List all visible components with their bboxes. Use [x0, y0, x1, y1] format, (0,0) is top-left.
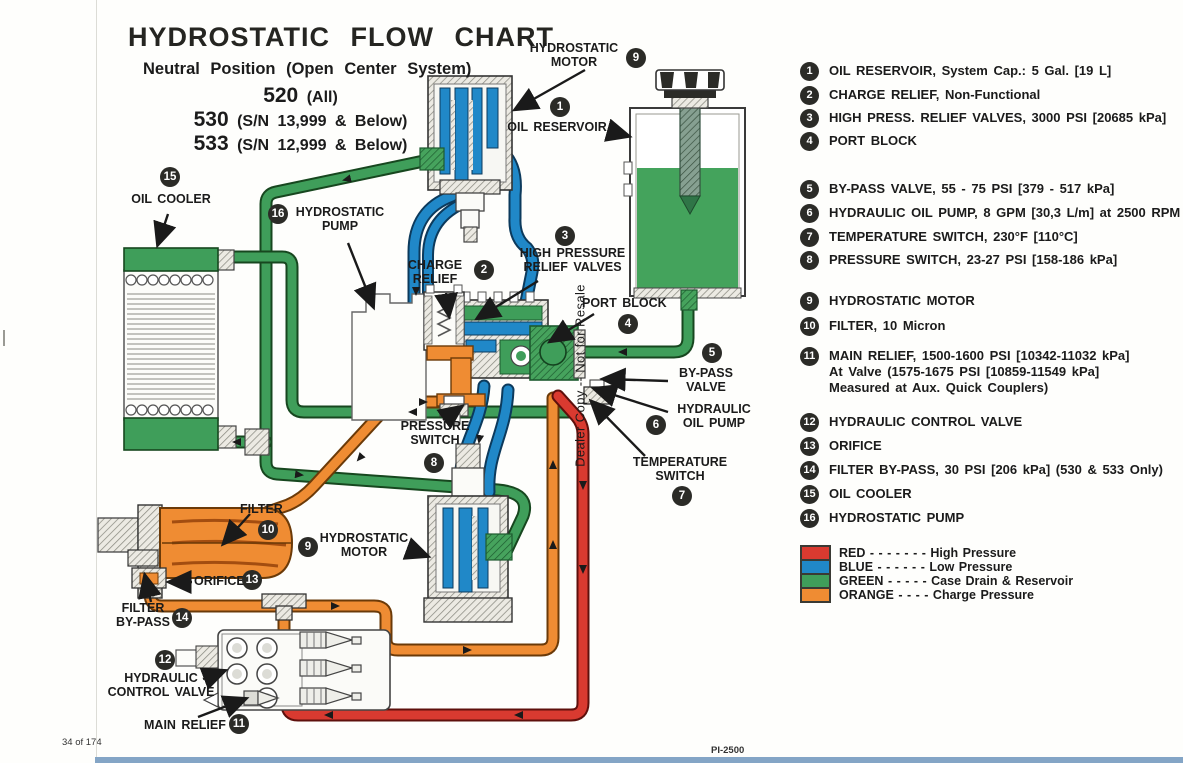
legend-text: PORT BLOCK: [829, 132, 917, 149]
legend-badge: 11: [800, 347, 819, 366]
legend-badge: 10: [800, 317, 819, 336]
legend-item-5: 5BY-PASS VALVE, 55 - 75 PSI [379 - 517 k…: [800, 180, 1183, 199]
label-hydraulic-control-valve: HYDRAULIC CONTROL VALVE: [96, 671, 226, 699]
label-hydraulic-oil-pump: HYDRAULIC OIL PUMP: [670, 402, 758, 430]
label-hydrostatic-motor-bottom: HYDROSTATIC MOTOR: [316, 531, 412, 559]
oil-cooler: [124, 248, 269, 455]
label-charge-relief: CHARGE RELIEF: [400, 258, 470, 286]
color-key-text: BLUE - - - - - - Low Pressure: [839, 560, 1012, 574]
label-hydrostatic-motor-top: HYDROSTATIC MOTOR: [518, 41, 630, 69]
page-title: HYDROSTATIC FLOW CHART: [128, 22, 554, 53]
left-edge-mark: [3, 330, 5, 346]
legend-item-1: 1OIL RESERVOIR, System Cap.: 5 Gal. [19 …: [800, 62, 1183, 81]
legend-badge: 5: [800, 180, 819, 199]
model-list: 520 (All) 530 (S/N 13,999 & Below) 533 (…: [128, 84, 473, 156]
color-desc: Charge Pressure: [933, 588, 1034, 602]
legend-text: BY-PASS VALVE, 55 - 75 PSI [379 - 517 kP…: [829, 180, 1114, 197]
legend-badge: 13: [800, 437, 819, 456]
badge-15: 15: [160, 167, 180, 187]
orange-swatch: [800, 587, 831, 603]
legend-badge: 1: [800, 62, 819, 81]
badge-3: 3: [555, 226, 575, 246]
label-main-relief: MAIN RELIEF: [144, 718, 232, 732]
legend-text: HYDRAULIC OIL PUMP, 8 GPM [30,3 L/m] at …: [829, 204, 1180, 221]
label-oil-cooler: OIL COOLER: [122, 192, 220, 206]
legend-item-11: 11MAIN RELIEF, 1500-1600 PSI [10342-1103…: [800, 347, 1183, 396]
badge-9-bottom: 9: [298, 537, 318, 557]
badge-2: 2: [474, 260, 494, 280]
legend-text: FILTER BY-PASS, 30 PSI [206 kPa] (530 & …: [829, 461, 1163, 478]
legend-badge: 15: [800, 485, 819, 504]
color-name: BLUE: [839, 560, 873, 574]
badge-10: 10: [258, 520, 278, 540]
color-dashes: - - - - - -: [878, 560, 925, 574]
color-dashes: - - - -: [898, 588, 928, 602]
label-hydrostatic-pump: HYDROSTATIC PUMP: [292, 205, 388, 233]
color-name: GREEN: [839, 574, 883, 588]
legend-item-14: 14FILTER BY-PASS, 30 PSI [206 kPa] (530 …: [800, 461, 1183, 480]
model-desc: (All): [298, 89, 338, 106]
oil-reservoir: [624, 70, 745, 310]
model-number: 520: [263, 84, 298, 107]
legend-badge: 7: [800, 228, 819, 247]
color-dashes: - - - - - - -: [870, 546, 926, 560]
legend-text: HYDROSTATIC PUMP: [829, 509, 964, 526]
legend-text: HYDROSTATIC MOTOR: [829, 292, 975, 309]
legend-badge: 3: [800, 109, 819, 128]
legend-text: OIL RESERVOIR, System Cap.: 5 Gal. [19 L…: [829, 62, 1111, 79]
legend-badge: 12: [800, 413, 819, 432]
label-pressure-switch: PRESSURE SWITCH: [394, 419, 476, 447]
legend-badge: 9: [800, 292, 819, 311]
legend-item-12: 12HYDRAULIC CONTROL VALVE: [800, 413, 1183, 432]
model-line: 530 (S/N 13,999 & Below): [128, 108, 473, 132]
legend-item-7: 7TEMPERATURE SWITCH, 230°F [110°C]: [800, 228, 1183, 247]
color-name: RED: [839, 546, 865, 560]
color-desc: Low Pressure: [929, 560, 1012, 574]
legend-item-3: 3HIGH PRESS. RELIEF VALVES, 3000 PSI [20…: [800, 109, 1183, 128]
valve-spools: [300, 632, 361, 704]
label-filter: FILTER: [240, 502, 302, 516]
model-desc: (S/N 13,999 & Below): [229, 113, 408, 130]
badge-11: 11: [229, 714, 249, 734]
legend-text: TEMPERATURE SWITCH, 230°F [110°C]: [829, 228, 1078, 245]
legend-text: HYDRAULIC CONTROL VALVE: [829, 413, 1022, 430]
legend-badge: 2: [800, 86, 819, 105]
color-key-orange: ORANGE - - - - Charge Pressure: [800, 587, 1034, 603]
badge-14: 14: [172, 608, 192, 628]
model-line: 533 (S/N 12,999 & Below): [128, 132, 473, 156]
legend-item-8: 8PRESSURE SWITCH, 23-27 PSI [158-186 kPa…: [800, 251, 1183, 270]
manual-page: HYDROSTATIC FLOW CHART Neutral Position …: [0, 0, 1183, 763]
filter-bypass-fitting: [128, 550, 158, 566]
label-filter-by-pass: FILTER BY-PASS: [111, 601, 175, 629]
legend-badge: 4: [800, 132, 819, 151]
legend-item-6: 6HYDRAULIC OIL PUMP, 8 GPM [30,3 L/m] at…: [800, 204, 1183, 223]
legend-text: ORIFICE: [829, 437, 882, 454]
badge-7: 7: [672, 486, 692, 506]
badge-5: 5: [702, 343, 722, 363]
bottom-page-edge: [95, 757, 1183, 763]
model-number: 533: [194, 132, 229, 155]
badge-16: 16: [268, 204, 288, 224]
label-oil-reservoir: OIL RESERVOIR: [502, 120, 612, 134]
legend-badge: 8: [800, 251, 819, 270]
legend-item-2: 2CHARGE RELIEF, Non-Functional: [800, 86, 1183, 105]
legend-item-16: 16HYDROSTATIC PUMP: [800, 509, 1183, 528]
legend-text: PRESSURE SWITCH, 23-27 PSI [158-186 kPa]: [829, 251, 1117, 268]
legend-item-15: 15OIL COOLER: [800, 485, 1183, 504]
legend-item-4: 4PORT BLOCK: [800, 132, 1183, 151]
color-desc: Case Drain & Reservoir: [931, 574, 1073, 588]
color-desc: High Pressure: [930, 546, 1016, 560]
color-key-text: ORANGE - - - - Charge Pressure: [839, 588, 1034, 602]
legend-badge: 6: [800, 204, 819, 223]
badge-9-top: 9: [626, 48, 646, 68]
badge-8: 8: [424, 453, 444, 473]
figure-number: PI-2500: [711, 745, 744, 756]
color-dashes: - - - - -: [888, 574, 927, 588]
legend-text: FILTER, 10 Micron: [829, 317, 945, 334]
badge-1: 1: [550, 97, 570, 117]
legend-text: HIGH PRESS. RELIEF VALVES, 3000 PSI [206…: [829, 109, 1166, 126]
label-temperature-switch: TEMPERATURE SWITCH: [624, 455, 736, 483]
legend-text: CHARGE RELIEF, Non-Functional: [829, 86, 1040, 103]
color-key-text: RED - - - - - - - High Pressure: [839, 546, 1016, 560]
label-port-block: PORT BLOCK: [582, 296, 682, 310]
label-high-pressure-relief-valves: HIGH PRESSURE RELIEF VALVES: [500, 246, 645, 274]
badge-6: 6: [646, 415, 666, 435]
page-margin-line: [96, 0, 97, 757]
legend-text: MAIN RELIEF, 1500-1600 PSI [10342-11032 …: [829, 347, 1130, 396]
legend-item-10: 10FILTER, 10 Micron: [800, 317, 1183, 336]
page-subtitle: Neutral Position (Open Center System): [143, 60, 471, 79]
color-name: ORANGE: [839, 588, 894, 602]
badge-4: 4: [618, 314, 638, 334]
legend-text: OIL COOLER: [829, 485, 912, 502]
model-number: 530: [194, 108, 229, 131]
legend-badge: 14: [800, 461, 819, 480]
legend-item-9: 9HYDROSTATIC MOTOR: [800, 292, 1183, 311]
label-by-pass-valve: BY-PASS VALVE: [670, 366, 742, 394]
legend-badge: 16: [800, 509, 819, 528]
badge-13: 13: [242, 570, 262, 590]
model-desc: (S/N 12,999 & Below): [229, 137, 408, 154]
legend-item-13: 13ORIFICE: [800, 437, 1183, 456]
badge-12: 12: [155, 650, 175, 670]
model-line: 520 (All): [128, 84, 473, 108]
color-key-text: GREEN - - - - - Case Drain & Reservoir: [839, 574, 1073, 588]
dealer-watermark: Dealer Copy -- Not for Resale: [573, 276, 588, 476]
